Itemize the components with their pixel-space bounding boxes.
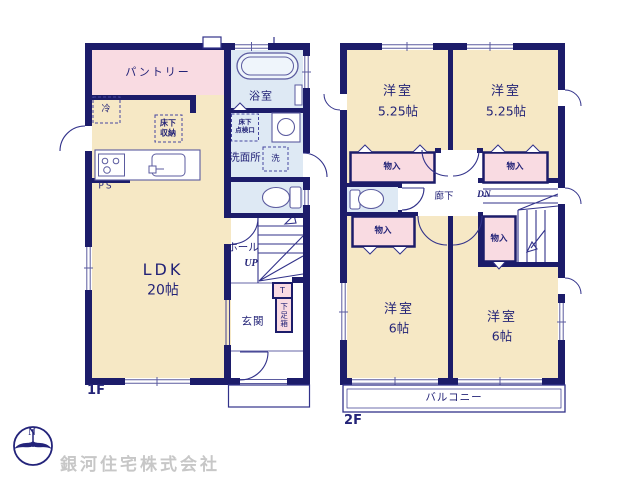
label-balcony: バルコニー (425, 392, 482, 405)
label-pantry: パントリー (125, 65, 191, 78)
floorplan-1f (60, 37, 327, 407)
label-hall: ホール (227, 242, 259, 255)
label-closet-se: 物入 (490, 234, 507, 244)
label-room-nw-name: 洋室 (383, 84, 413, 100)
floorplan-2f (324, 42, 581, 412)
label-ldk-name: LDK (143, 260, 184, 280)
label-washroom: 洗面所 (229, 152, 261, 165)
label-closet-nw: 物入 (383, 162, 400, 172)
floorplan-drawing (0, 0, 640, 480)
label-room-ne-name: 洋室 (491, 84, 521, 100)
label-washer: 洗 (271, 154, 280, 164)
company-watermark: 銀河住宅株式会社 (60, 450, 220, 475)
label-room-se-name: 洋室 (487, 310, 517, 326)
label-underfloor-storage: 床下 収納 (160, 118, 176, 138)
label-up: UP (244, 258, 257, 270)
porch (229, 385, 310, 407)
label-down: DN (477, 190, 491, 202)
compass-north-label: N (28, 427, 35, 439)
label-bathroom: 浴室 (249, 89, 273, 102)
label-shoe-cabinet: 下足箱 (279, 302, 288, 328)
label-fridge: 冷 (101, 105, 110, 116)
toilet-2f (350, 190, 384, 210)
label-floor2: 2F (344, 413, 362, 429)
label-room-sw-size: 6帖 (389, 320, 409, 335)
label-closet-sw: 物入 (374, 226, 391, 236)
label-pipe-space: PS (98, 182, 113, 193)
label-room-se-size: 6帖 (492, 328, 512, 343)
label-room-sw-name: 洋室 (384, 302, 414, 318)
floorplan-page: パントリー 冷 床下 収納 浴室 床下 点検口 洗面所 洗 PS LDK 20帖… (0, 0, 640, 480)
label-closet-ne: 物入 (506, 162, 523, 172)
label-inspection-hatch: 床下 点検口 (235, 119, 255, 135)
label-floor1: 1F (87, 383, 105, 399)
label-ldk-size: 20帖 (147, 282, 179, 299)
label-entrance: 玄関 (242, 316, 265, 329)
label-room-nw-size: 5.25帖 (378, 103, 418, 118)
label-corridor: 廊下 (434, 191, 453, 203)
label-room-ne-size: 5.25帖 (486, 103, 526, 118)
label-shoe-cabinet-t: T (280, 286, 285, 296)
